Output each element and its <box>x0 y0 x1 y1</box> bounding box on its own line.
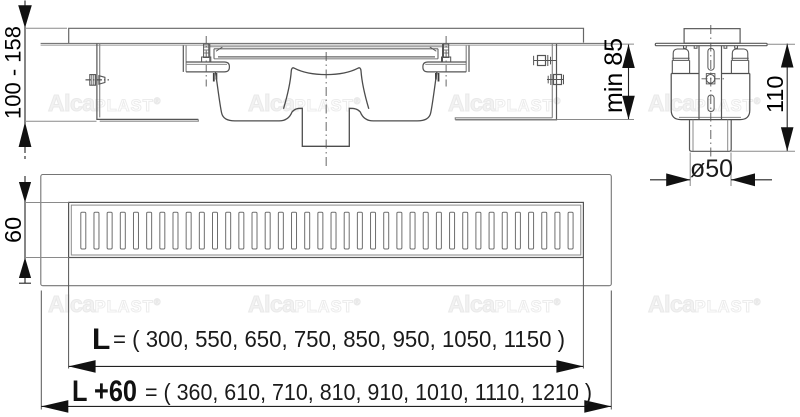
svg-text:100 - 158: 100 - 158 <box>1 26 26 119</box>
svg-text:L +60: L +60 <box>72 375 137 408</box>
svg-text:ø50: ø50 <box>690 155 733 183</box>
svg-text:min 85: min 85 <box>600 38 628 113</box>
svg-text:= ( 300, 550, 650, 750, 850, 9: = ( 300, 550, 650, 750, 850, 950, 1050, … <box>113 326 565 352</box>
svg-text:L: L <box>92 323 110 356</box>
svg-text:110: 110 <box>762 76 788 113</box>
svg-text:= ( 360, 610, 710, 810, 910, 1: = ( 360, 610, 710, 810, 910, 1010, 1110,… <box>145 379 592 405</box>
svg-text:60: 60 <box>0 217 26 243</box>
